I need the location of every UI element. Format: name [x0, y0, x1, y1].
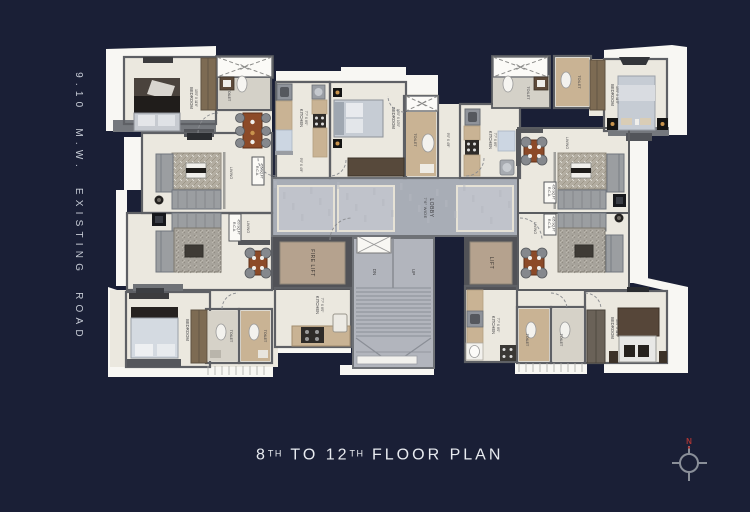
svg-text:9.10 M.W. EXISTING ROAD: 9.10 M.W. EXISTING ROAD — [73, 72, 84, 342]
svg-text:7'7" X 8'0": 7'7" X 8'0" — [496, 318, 500, 332]
svg-text:R.C.A.: R.C.A. — [547, 187, 551, 197]
svg-text:BEDROOM: BEDROOM — [189, 87, 194, 109]
svg-text:TOILET: TOILET — [229, 330, 233, 343]
svg-text:10'0" X 11'0": 10'0" X 11'0" — [615, 319, 619, 337]
svg-text:435 SQ.FT: 435 SQ.FT — [552, 184, 556, 200]
svg-text:10'0" X 11'6": 10'0" X 11'6" — [194, 89, 198, 107]
svg-text:R.C.A.: R.C.A. — [255, 166, 259, 176]
svg-text:TOILET: TOILET — [525, 334, 529, 347]
svg-text:7'7" X 8'0": 7'7" X 8'0" — [320, 298, 324, 312]
svg-text:LIVING: LIVING — [565, 137, 569, 149]
svg-text:9'0" X 4'8": 9'0" X 4'8" — [299, 158, 303, 172]
svg-text:10'0" X 10'0": 10'0" X 10'0" — [396, 109, 400, 127]
svg-text:450 SQ.FT: 450 SQ.FT — [237, 219, 241, 235]
svg-text:7'7" X 8'0": 7'7" X 8'0" — [493, 133, 497, 147]
svg-text:BEDROOM: BEDROOM — [610, 84, 615, 106]
svg-text:10'0" X 11'0": 10'0" X 11'0" — [615, 86, 619, 104]
svg-text:FIRE LIFT: FIRE LIFT — [309, 249, 315, 277]
svg-text:TOILET: TOILET — [526, 86, 530, 100]
svg-text:LIFT: LIFT — [488, 257, 494, 269]
svg-text:DN: DN — [372, 269, 377, 276]
svg-text:R.C.A.: R.C.A. — [232, 222, 236, 232]
svg-text:KITCHEN: KITCHEN — [299, 109, 304, 127]
svg-text:9'0" X 4'8": 9'0" X 4'8" — [446, 133, 450, 147]
svg-text:BEDROOM: BEDROOM — [391, 107, 396, 129]
svg-text:KITCHEN: KITCHEN — [488, 131, 493, 149]
svg-text:7'7" X 8'0": 7'7" X 8'0" — [304, 111, 308, 125]
svg-text:KITCHEN: KITCHEN — [491, 316, 496, 334]
svg-text:BEDROOM: BEDROOM — [185, 319, 190, 341]
svg-text:TOILET: TOILET — [559, 334, 563, 347]
svg-text:KITCHEN: KITCHEN — [315, 296, 320, 314]
svg-text:7'6" WIDE: 7'6" WIDE — [423, 198, 428, 219]
svg-text:LIVING: LIVING — [246, 221, 250, 233]
svg-text:435 SQ.FT: 435 SQ.FT — [552, 216, 556, 232]
svg-text:LIVING: LIVING — [229, 167, 233, 179]
svg-text:TOILET: TOILET — [263, 330, 267, 343]
svg-text:UP: UP — [411, 269, 416, 275]
svg-text:TOILET: TOILET — [577, 75, 581, 89]
svg-text:TOILET: TOILET — [227, 89, 231, 102]
svg-text:R.C.A.: R.C.A. — [547, 219, 551, 229]
svg-text:N: N — [686, 437, 692, 446]
svg-text:BEDROOM: BEDROOM — [610, 317, 615, 339]
svg-text:TOILET: TOILET — [413, 133, 417, 147]
svg-text:8TH TO 12TH FLOOR PLAN: 8TH TO 12TH FLOOR PLAN — [256, 447, 503, 464]
